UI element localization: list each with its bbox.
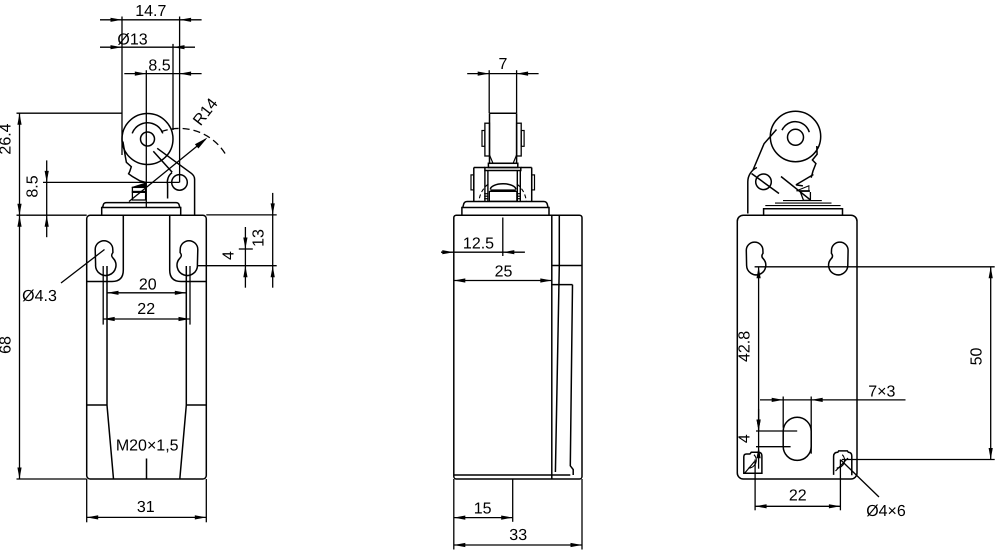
- svg-text:20: 20: [139, 277, 157, 294]
- svg-text:8.5: 8.5: [25, 175, 42, 197]
- svg-text:68: 68: [0, 336, 15, 354]
- svg-text:Ø4.3: Ø4.3: [22, 288, 57, 305]
- svg-text:22: 22: [789, 488, 807, 505]
- svg-text:12.5: 12.5: [463, 236, 494, 253]
- svg-text:13: 13: [251, 229, 268, 247]
- svg-text:M20×1,5: M20×1,5: [116, 438, 179, 455]
- svg-text:4: 4: [737, 434, 754, 443]
- svg-text:31: 31: [137, 499, 155, 516]
- svg-text:14.7: 14.7: [135, 3, 166, 20]
- svg-text:4: 4: [221, 251, 238, 260]
- svg-text:7×3: 7×3: [868, 384, 895, 401]
- svg-text:50: 50: [969, 348, 986, 366]
- svg-text:25: 25: [495, 264, 513, 281]
- svg-text:7: 7: [499, 56, 508, 73]
- svg-text:26.4: 26.4: [0, 123, 15, 154]
- svg-text:8.5: 8.5: [148, 58, 170, 75]
- svg-text:Ø13: Ø13: [117, 32, 147, 49]
- svg-text:22: 22: [137, 301, 155, 318]
- svg-text:15: 15: [474, 501, 492, 518]
- svg-text:42.8: 42.8: [737, 331, 754, 362]
- svg-text:Ø4×6: Ø4×6: [866, 503, 906, 520]
- svg-text:33: 33: [509, 527, 527, 544]
